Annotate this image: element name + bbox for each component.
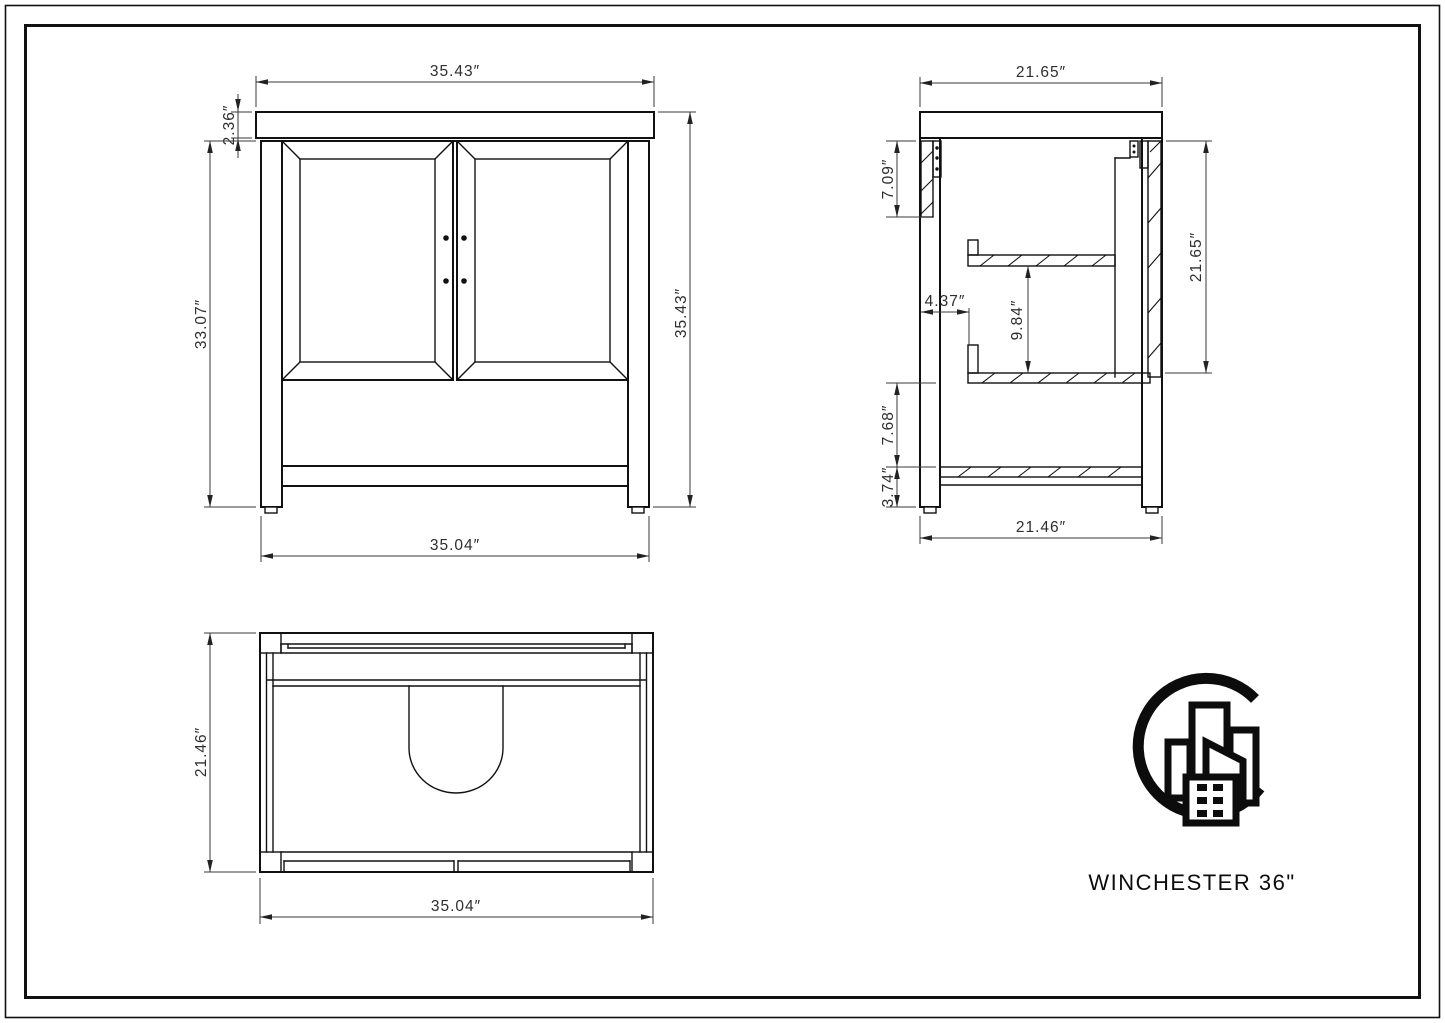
dim-front-overall-height: 35.43″: [673, 288, 690, 338]
dim-side-interior-height: 21.65″: [1188, 232, 1205, 282]
front-view: 35.43″ 2.36″ 33.07″ 35.43″ 35.04″: [193, 63, 696, 562]
dim-side-base-height: 3.74″: [880, 467, 897, 508]
brand-block: WINCHESTER 36": [1088, 678, 1295, 895]
side-lower-stretcher: [940, 467, 1142, 485]
dim-side-top-depth: 21.65″: [1016, 64, 1066, 81]
top-front-doors: [281, 852, 632, 872]
top-view: 21.46″ 35.04″: [193, 633, 653, 924]
front-left-foot: [265, 507, 277, 513]
outer-border: [6, 6, 1440, 1018]
top-side-rails: [267, 653, 647, 852]
drawing-sheet: 35.43″ 2.36″ 33.07″ 35.43″ 35.04″: [0, 0, 1445, 1023]
front-handle-holes: [443, 235, 467, 284]
dim-front-top-width: 35.43″: [430, 63, 480, 80]
front-right-door: [457, 141, 628, 380]
dim-top-depth: 21.46″: [193, 727, 210, 777]
city-buildings-c-logo-icon: [1138, 678, 1260, 823]
top-corner-posts: [260, 633, 653, 872]
side-middle-shelf: [968, 240, 1115, 266]
top-sink-cutout: [409, 686, 503, 793]
side-bottom-shelf: [968, 345, 1150, 383]
dim-side-frame-height: 7.09″: [880, 159, 897, 200]
side-legs: [920, 138, 1162, 513]
product-name: WINCHESTER 36": [1088, 870, 1295, 895]
front-cabinet-frame: [261, 141, 649, 513]
dim-side-base-depth: 21.46″: [1016, 519, 1066, 536]
dim-top-width: 35.04″: [431, 898, 481, 915]
top-backsplash: [281, 644, 632, 653]
dim-side-lower-clearance: 7.68″: [880, 405, 897, 446]
side-back-foot: [1146, 507, 1158, 513]
dim-front-counter-thickness: 2.36″: [221, 105, 238, 146]
side-back-frame: [1115, 141, 1161, 377]
front-countertop: [256, 112, 654, 138]
top-outline: [260, 633, 653, 872]
dim-side-shelf-clearance: 9.84″: [1009, 300, 1026, 341]
inner-border: [26, 26, 1420, 998]
dim-front-base-width: 35.04″: [430, 537, 480, 554]
technical-drawing: 35.43″ 2.36″ 33.07″ 35.43″ 35.04″: [0, 0, 1445, 1023]
top-dimensions: 21.46″ 35.04″: [193, 633, 653, 924]
side-front-foot: [924, 507, 936, 513]
side-countertop: [920, 112, 1162, 138]
front-right-foot: [632, 507, 644, 513]
dim-side-shelf-setback: 4.37″: [925, 293, 966, 310]
side-view: 21.65″ 7.09″ 4.37″ 9.84″ 21.65″ 7.68″: [880, 64, 1212, 544]
front-left-door: [282, 141, 453, 380]
dim-front-cabinet-height: 33.07″: [193, 299, 210, 349]
top-back-rail: [267, 680, 646, 686]
side-front-frame: [921, 141, 941, 217]
